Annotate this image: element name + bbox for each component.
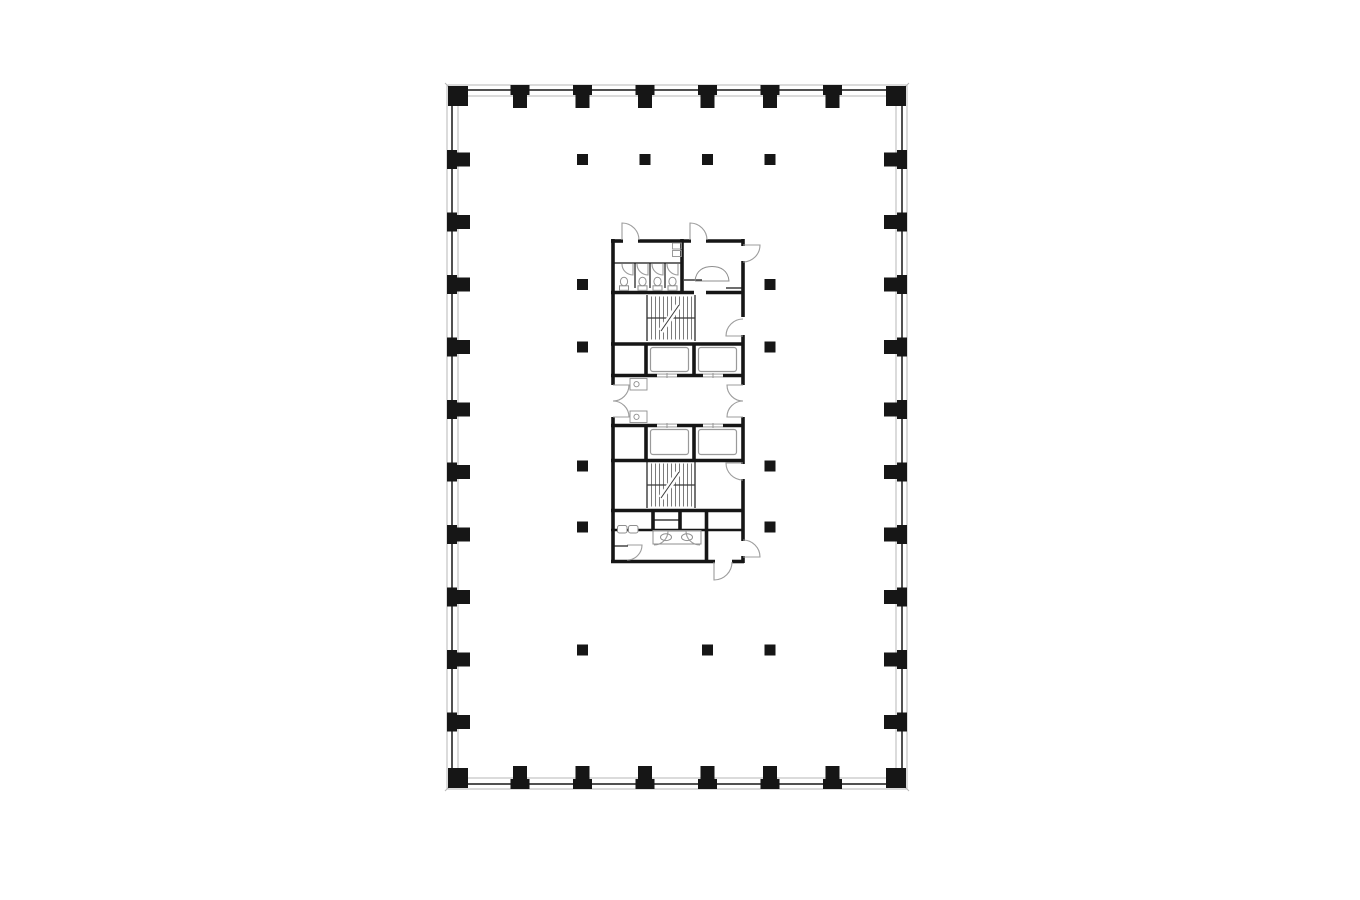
perimeter-column [884, 465, 897, 479]
stair [647, 297, 695, 340]
column-cap [636, 85, 655, 95]
perimeter-column [884, 153, 897, 167]
sink [629, 526, 639, 534]
elevator-car [651, 430, 689, 455]
column-cap [823, 779, 842, 789]
column-cap [823, 85, 842, 95]
toilet-tank [653, 286, 662, 291]
perimeter-column [884, 340, 897, 354]
corner-column [886, 768, 906, 788]
toilet-bowl [669, 277, 676, 286]
toilet-bowl [654, 277, 661, 286]
door-swing [622, 264, 633, 275]
perimeter-column [513, 95, 527, 108]
elevator-car [699, 348, 737, 372]
perimeter-column [884, 590, 897, 604]
perimeter-column [576, 766, 590, 779]
interior-column [702, 645, 713, 656]
stairs [647, 297, 695, 507]
door-swing [652, 264, 663, 275]
door-swing [613, 401, 629, 417]
perimeter-column [576, 95, 590, 108]
door-swing [743, 245, 760, 262]
corner-column [886, 86, 906, 106]
column-cap [897, 463, 907, 482]
interior-column [577, 154, 588, 165]
perimeter-column [701, 766, 715, 779]
column-cap [447, 213, 457, 232]
column-cap [447, 588, 457, 607]
interior-column [765, 461, 776, 472]
perimeter-column [457, 340, 470, 354]
perimeter-column [513, 766, 527, 779]
perimeter-column [763, 95, 777, 108]
interior-column [577, 279, 588, 290]
column-cap [897, 150, 907, 169]
column-cap [897, 525, 907, 544]
column-cap [897, 588, 907, 607]
service-fixture [673, 243, 682, 249]
corner-column [448, 768, 468, 788]
interior-column [765, 645, 776, 656]
perimeter-column [457, 153, 470, 167]
column-cap [897, 400, 907, 419]
column-cap [761, 779, 780, 789]
perimeter-column [457, 278, 470, 292]
perimeter-column [884, 215, 897, 229]
column-cap [511, 85, 530, 95]
perimeter-column [457, 590, 470, 604]
document-canvas [0, 0, 1360, 900]
perimeter-column [884, 653, 897, 667]
door-swing [690, 223, 707, 240]
curtain-wall-outer-line [447, 85, 907, 789]
interior-column [765, 342, 776, 353]
elevator-car [699, 430, 737, 455]
perimeter-column [826, 766, 840, 779]
column-cap [897, 275, 907, 294]
interior-column [765, 279, 776, 290]
door-swing [622, 223, 639, 240]
plumbing-fixtures [618, 243, 730, 544]
interior-column [577, 342, 588, 353]
column-cap [636, 779, 655, 789]
service-fixture [673, 251, 682, 257]
interior-column [577, 461, 588, 472]
toilet-tank [668, 286, 677, 291]
door-swing [726, 463, 743, 480]
door-swing [637, 264, 648, 275]
column-cap [897, 213, 907, 232]
column-cap [897, 338, 907, 357]
curtain-wall-main-line [452, 90, 902, 784]
perimeter-column [457, 653, 470, 667]
toilet-bowl [620, 277, 627, 286]
perimeter-column [884, 715, 897, 729]
floor-plan-drawing [0, 0, 1360, 900]
door-swing [726, 319, 743, 336]
perimeter-column [763, 766, 777, 779]
column-cap [698, 779, 717, 789]
perimeter-column [457, 465, 470, 479]
interior-column [640, 154, 651, 165]
interior-columns [577, 154, 776, 656]
corner-column [448, 86, 468, 106]
door-swing [714, 562, 732, 580]
curtain-wall-inner-line [458, 96, 896, 778]
lobby-fixture-box [630, 379, 647, 391]
column-cap [573, 85, 592, 95]
column-cap [573, 779, 592, 789]
column-cap [897, 713, 907, 732]
column-cap [761, 85, 780, 95]
door-swing [743, 540, 760, 557]
perimeter-column [638, 95, 652, 108]
column-cap [447, 275, 457, 294]
door-swing [613, 385, 629, 401]
interior-column [765, 522, 776, 533]
door-swing [667, 264, 678, 275]
door-swing [686, 531, 700, 545]
interior-column [765, 154, 776, 165]
perimeter-column [884, 278, 897, 292]
column-cap [447, 525, 457, 544]
toilet-tank [620, 286, 629, 291]
interior-column [577, 645, 588, 656]
perimeter-column [884, 528, 897, 542]
lobby-fixture-box [630, 411, 647, 423]
interior-column [702, 154, 713, 165]
perimeter-column [884, 403, 897, 417]
lobby-fixture-drain [634, 414, 639, 419]
toilet-tank [638, 286, 647, 291]
door-swing [727, 385, 743, 401]
interior-column [577, 522, 588, 533]
column-cap [447, 338, 457, 357]
perimeter-columns [447, 85, 907, 789]
stair [647, 464, 695, 507]
perimeter-column [826, 95, 840, 108]
column-cap [511, 779, 530, 789]
perimeter-column [701, 95, 715, 108]
perimeter-column [638, 766, 652, 779]
toilet-bowl [639, 277, 646, 286]
column-cap [447, 713, 457, 732]
column-cap [447, 650, 457, 669]
door-swing [727, 401, 743, 417]
column-cap [897, 650, 907, 669]
perimeter-column [457, 403, 470, 417]
perimeter-column [457, 715, 470, 729]
curtain-wall [445, 83, 909, 791]
column-cap [447, 463, 457, 482]
perimeter-column [457, 528, 470, 542]
column-cap [447, 150, 457, 169]
door-swing [627, 545, 642, 560]
column-cap [447, 400, 457, 419]
curved-counter [695, 267, 729, 282]
lobby-fixture-drain [634, 382, 639, 387]
sink [618, 526, 628, 534]
column-cap [698, 85, 717, 95]
perimeter-column [457, 215, 470, 229]
elevator-car [651, 348, 689, 372]
